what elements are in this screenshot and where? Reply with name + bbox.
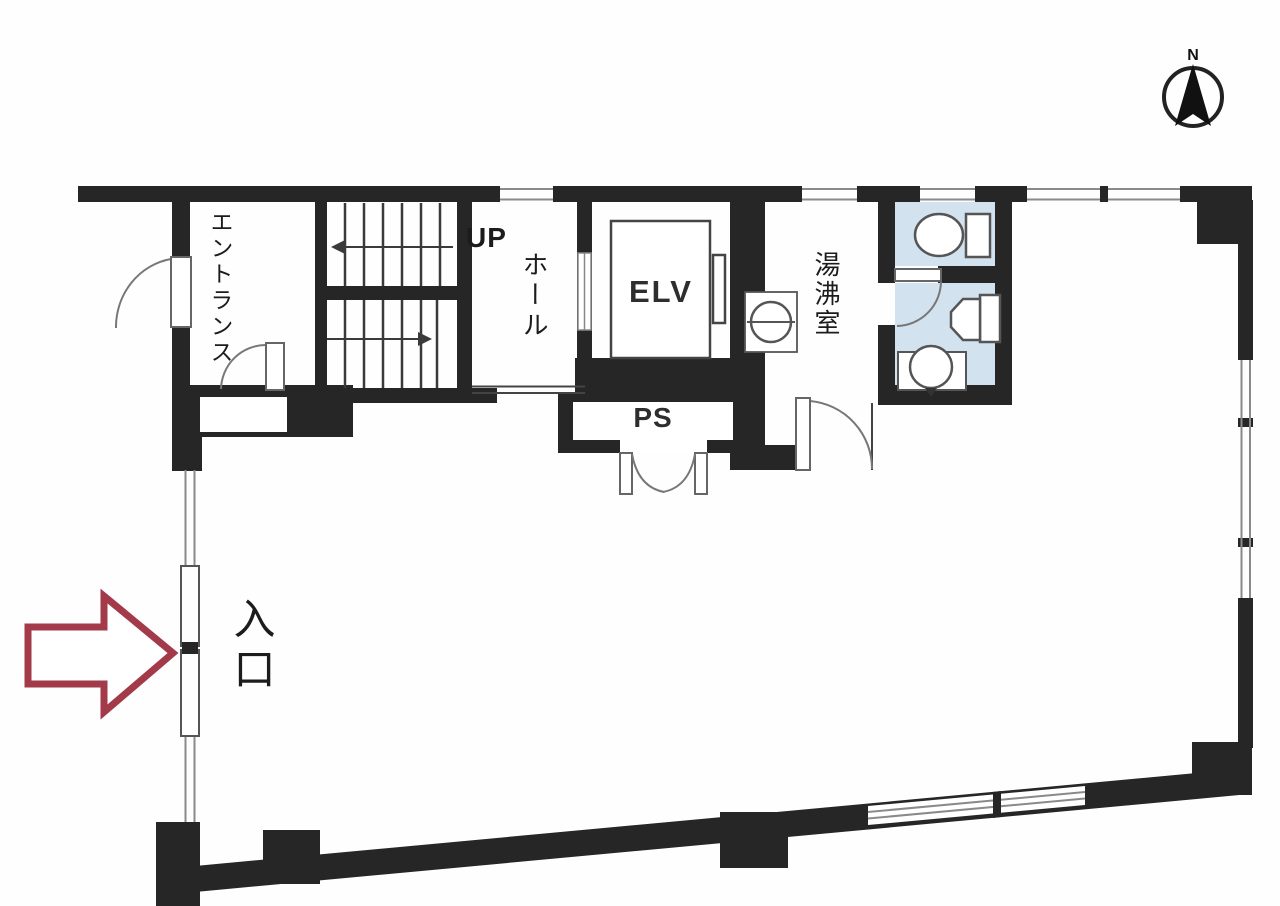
fixtures <box>745 214 1000 397</box>
wall-elv-right <box>730 202 765 292</box>
sink-bowl <box>910 346 952 388</box>
north-arrow-icon <box>1175 64 1211 126</box>
entry-door-panel-1 <box>181 566 199 646</box>
wall-toilet-left-upper <box>878 202 895 283</box>
wall-yuwakashi-south <box>765 445 798 470</box>
room-label-elevator: ELV <box>611 274 711 310</box>
window-top-toilet <box>920 189 975 200</box>
wall-niche <box>200 397 287 432</box>
stair-arrow-upper-head <box>331 240 345 254</box>
ps-double-door <box>620 453 707 494</box>
wall-stair-bottom <box>327 388 497 403</box>
entry-arrow-icon <box>28 596 173 712</box>
wall-right-upper <box>1238 200 1253 360</box>
room-label-hall: ホール <box>516 251 553 341</box>
wall-top-1 <box>78 186 500 202</box>
toilet-bottom-tank <box>980 295 1000 342</box>
wall-top-2 <box>553 186 802 202</box>
entrance-exterior-door-arc <box>116 259 171 328</box>
toilet-top-bowl <box>915 214 963 256</box>
wall-top-5 <box>1100 186 1108 202</box>
toilet-sink <box>898 346 966 397</box>
wall-stair-landing <box>315 286 468 300</box>
ps-door-opening <box>620 437 707 453</box>
stair-treads-upper <box>345 203 440 286</box>
corner-column-bottom-left <box>156 822 200 906</box>
wall-elv-bottom <box>575 358 745 393</box>
ps-door-arc-left <box>632 454 664 492</box>
window-top-main-1 <box>1027 189 1100 200</box>
room-label-entrance: エントランス <box>203 210 237 366</box>
wall-elv-right-mid <box>730 292 745 352</box>
room-label-water-heating: 湯沸室 <box>808 251 845 338</box>
window-bottom-divider <box>993 791 1001 818</box>
floor-plan-drawing: N <box>0 0 1280 906</box>
toilet-top-tank <box>966 214 990 257</box>
compass-north-label: N <box>1187 47 1199 64</box>
wall-entrance-left-lower <box>172 325 190 387</box>
basin-niche <box>745 292 797 352</box>
entrance-exterior-door-leaf <box>171 257 191 327</box>
elevator-counterweight <box>713 255 725 323</box>
ps-door-arc-right <box>663 454 695 492</box>
window-top-main-2 <box>1108 189 1180 200</box>
ps-door-leaf-right <box>695 453 707 494</box>
column-left-glass-top <box>172 440 202 470</box>
room-label-pipe-space: PS <box>573 402 733 434</box>
wall-right-lower <box>1238 598 1253 748</box>
window-top-yuwakashi <box>802 189 857 200</box>
toilet-fixture-top <box>915 214 990 257</box>
floor-plan-page: N エントランス UP ホール ELV PS 湯沸室 入口 <box>0 0 1280 906</box>
yuwakashi-door <box>796 398 872 470</box>
wall-top-3 <box>857 186 920 202</box>
window-top-hall <box>500 189 553 200</box>
stairs-up-label: UP <box>466 222 507 254</box>
yuwakashi-door-arc <box>810 401 872 469</box>
stair-arrow-lower-head <box>418 332 432 346</box>
entrance-exterior-door <box>116 257 191 328</box>
stair-treads-lower <box>345 300 437 388</box>
toilet-door-leaf <box>895 269 941 281</box>
yuwakashi-door-leaf <box>796 398 810 470</box>
entry-door-panels <box>181 566 199 736</box>
entry-door-panel-2 <box>181 650 199 736</box>
window-right <box>1242 360 1251 598</box>
column-bottom-1 <box>263 830 320 884</box>
entry-door-joint <box>182 642 198 654</box>
north-compass: N <box>1164 47 1222 126</box>
ps-door-leaf-left <box>620 453 632 494</box>
wall-top-6 <box>1180 186 1252 202</box>
wall-entrance-left-upper <box>172 202 190 258</box>
entrance-interior-door-leaf <box>266 343 284 390</box>
entry-label: 入口 <box>221 597 282 697</box>
column-bottom-2 <box>720 812 788 868</box>
